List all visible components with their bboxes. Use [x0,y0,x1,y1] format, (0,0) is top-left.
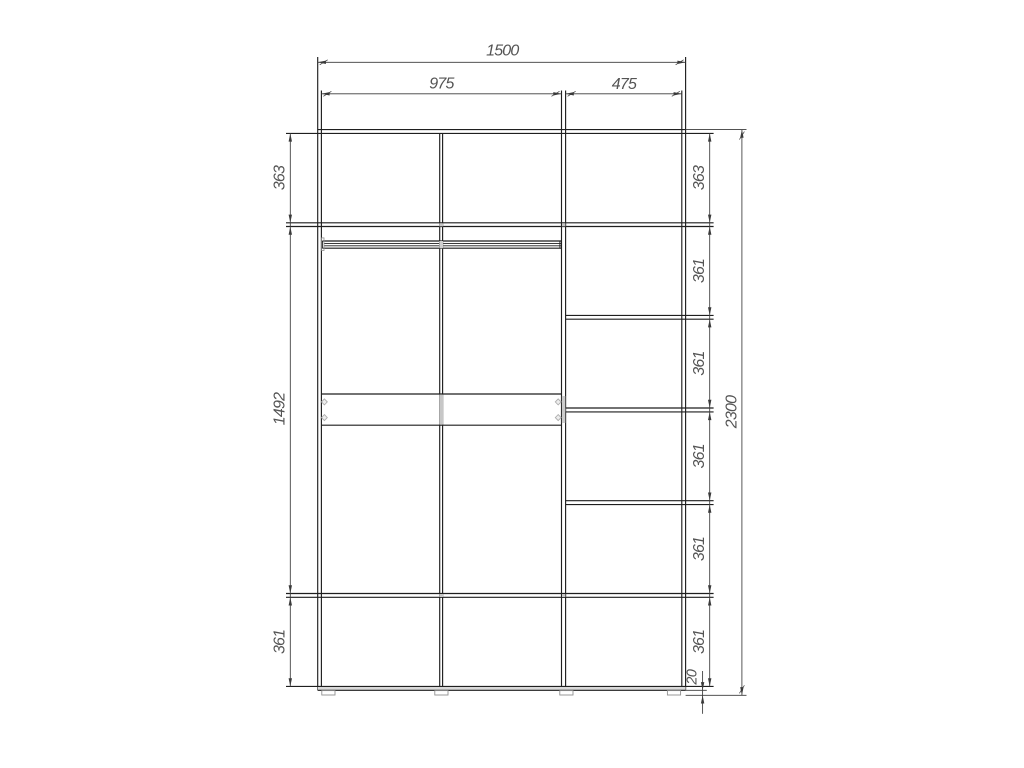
svg-text:361: 361 [691,444,708,468]
svg-text:2300: 2300 [724,395,741,429]
svg-text:363: 363 [691,165,708,190]
svg-text:1492: 1492 [272,392,289,425]
svg-text:1500: 1500 [486,42,519,59]
svg-text:475: 475 [612,76,637,93]
svg-text:361: 361 [272,630,289,654]
svg-text:361: 361 [691,537,708,561]
svg-text:361: 361 [691,630,708,654]
svg-text:363: 363 [272,165,289,190]
svg-text:361: 361 [691,259,708,283]
svg-text:361: 361 [691,351,708,375]
svg-text:975: 975 [429,76,454,93]
svg-text:20: 20 [684,669,700,685]
